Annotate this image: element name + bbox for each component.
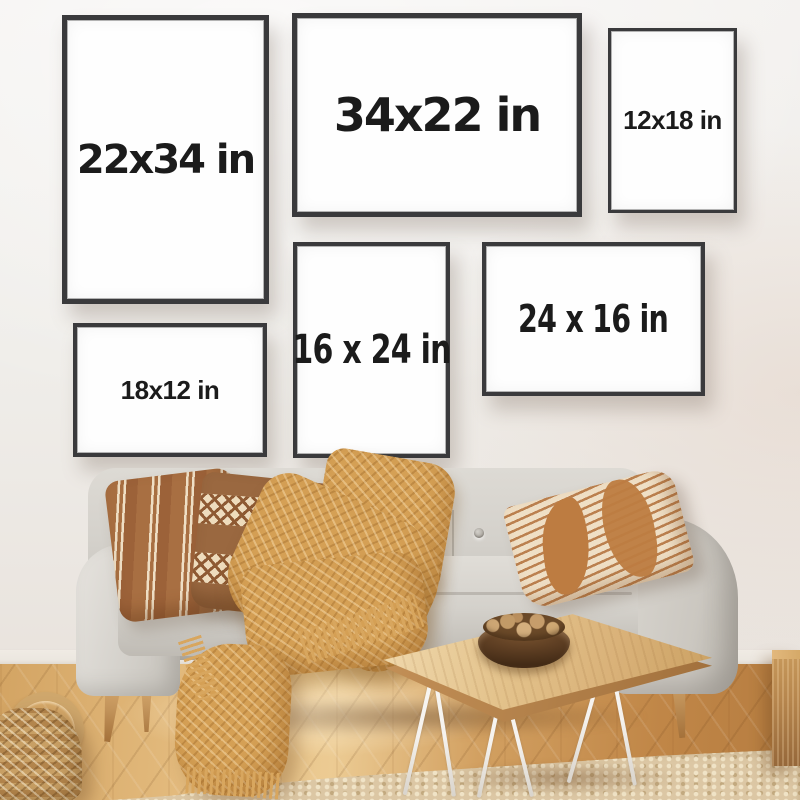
size-label-22x34: 22x34 in — [77, 137, 254, 183]
size-frame-24x16: 24 x 16 in — [482, 242, 705, 396]
size-label-16x24: 16 x 24 in — [292, 327, 450, 373]
bowl-of-nuts — [483, 613, 565, 641]
pillow-leaf-shape — [596, 475, 663, 582]
size-frame-18x12: 18x12 in — [73, 323, 267, 457]
size-frame-34x22: 34x22 in — [292, 13, 582, 217]
size-frame-12x18: 12x18 in — [608, 28, 737, 213]
woven-basket — [0, 708, 82, 800]
size-label-18x12: 18x12 in — [121, 375, 220, 406]
size-label-34x22: 34x22 in — [334, 88, 540, 142]
size-frame-16x24: 16 x 24 in — [293, 242, 450, 458]
size-label-12x18: 12x18 in — [623, 105, 722, 136]
pillow-leaf-shape — [538, 496, 594, 596]
living-room-frame-size-guide: 22x34 in 34x22 in 12x18 in 16 x 24 in 24… — [0, 0, 800, 800]
size-frame-22x34: 22x34 in — [62, 15, 269, 304]
sofa-tufting-button — [474, 528, 484, 538]
wood-cube-side-table — [772, 650, 800, 766]
size-label-24x16: 24 x 16 in — [518, 297, 668, 341]
